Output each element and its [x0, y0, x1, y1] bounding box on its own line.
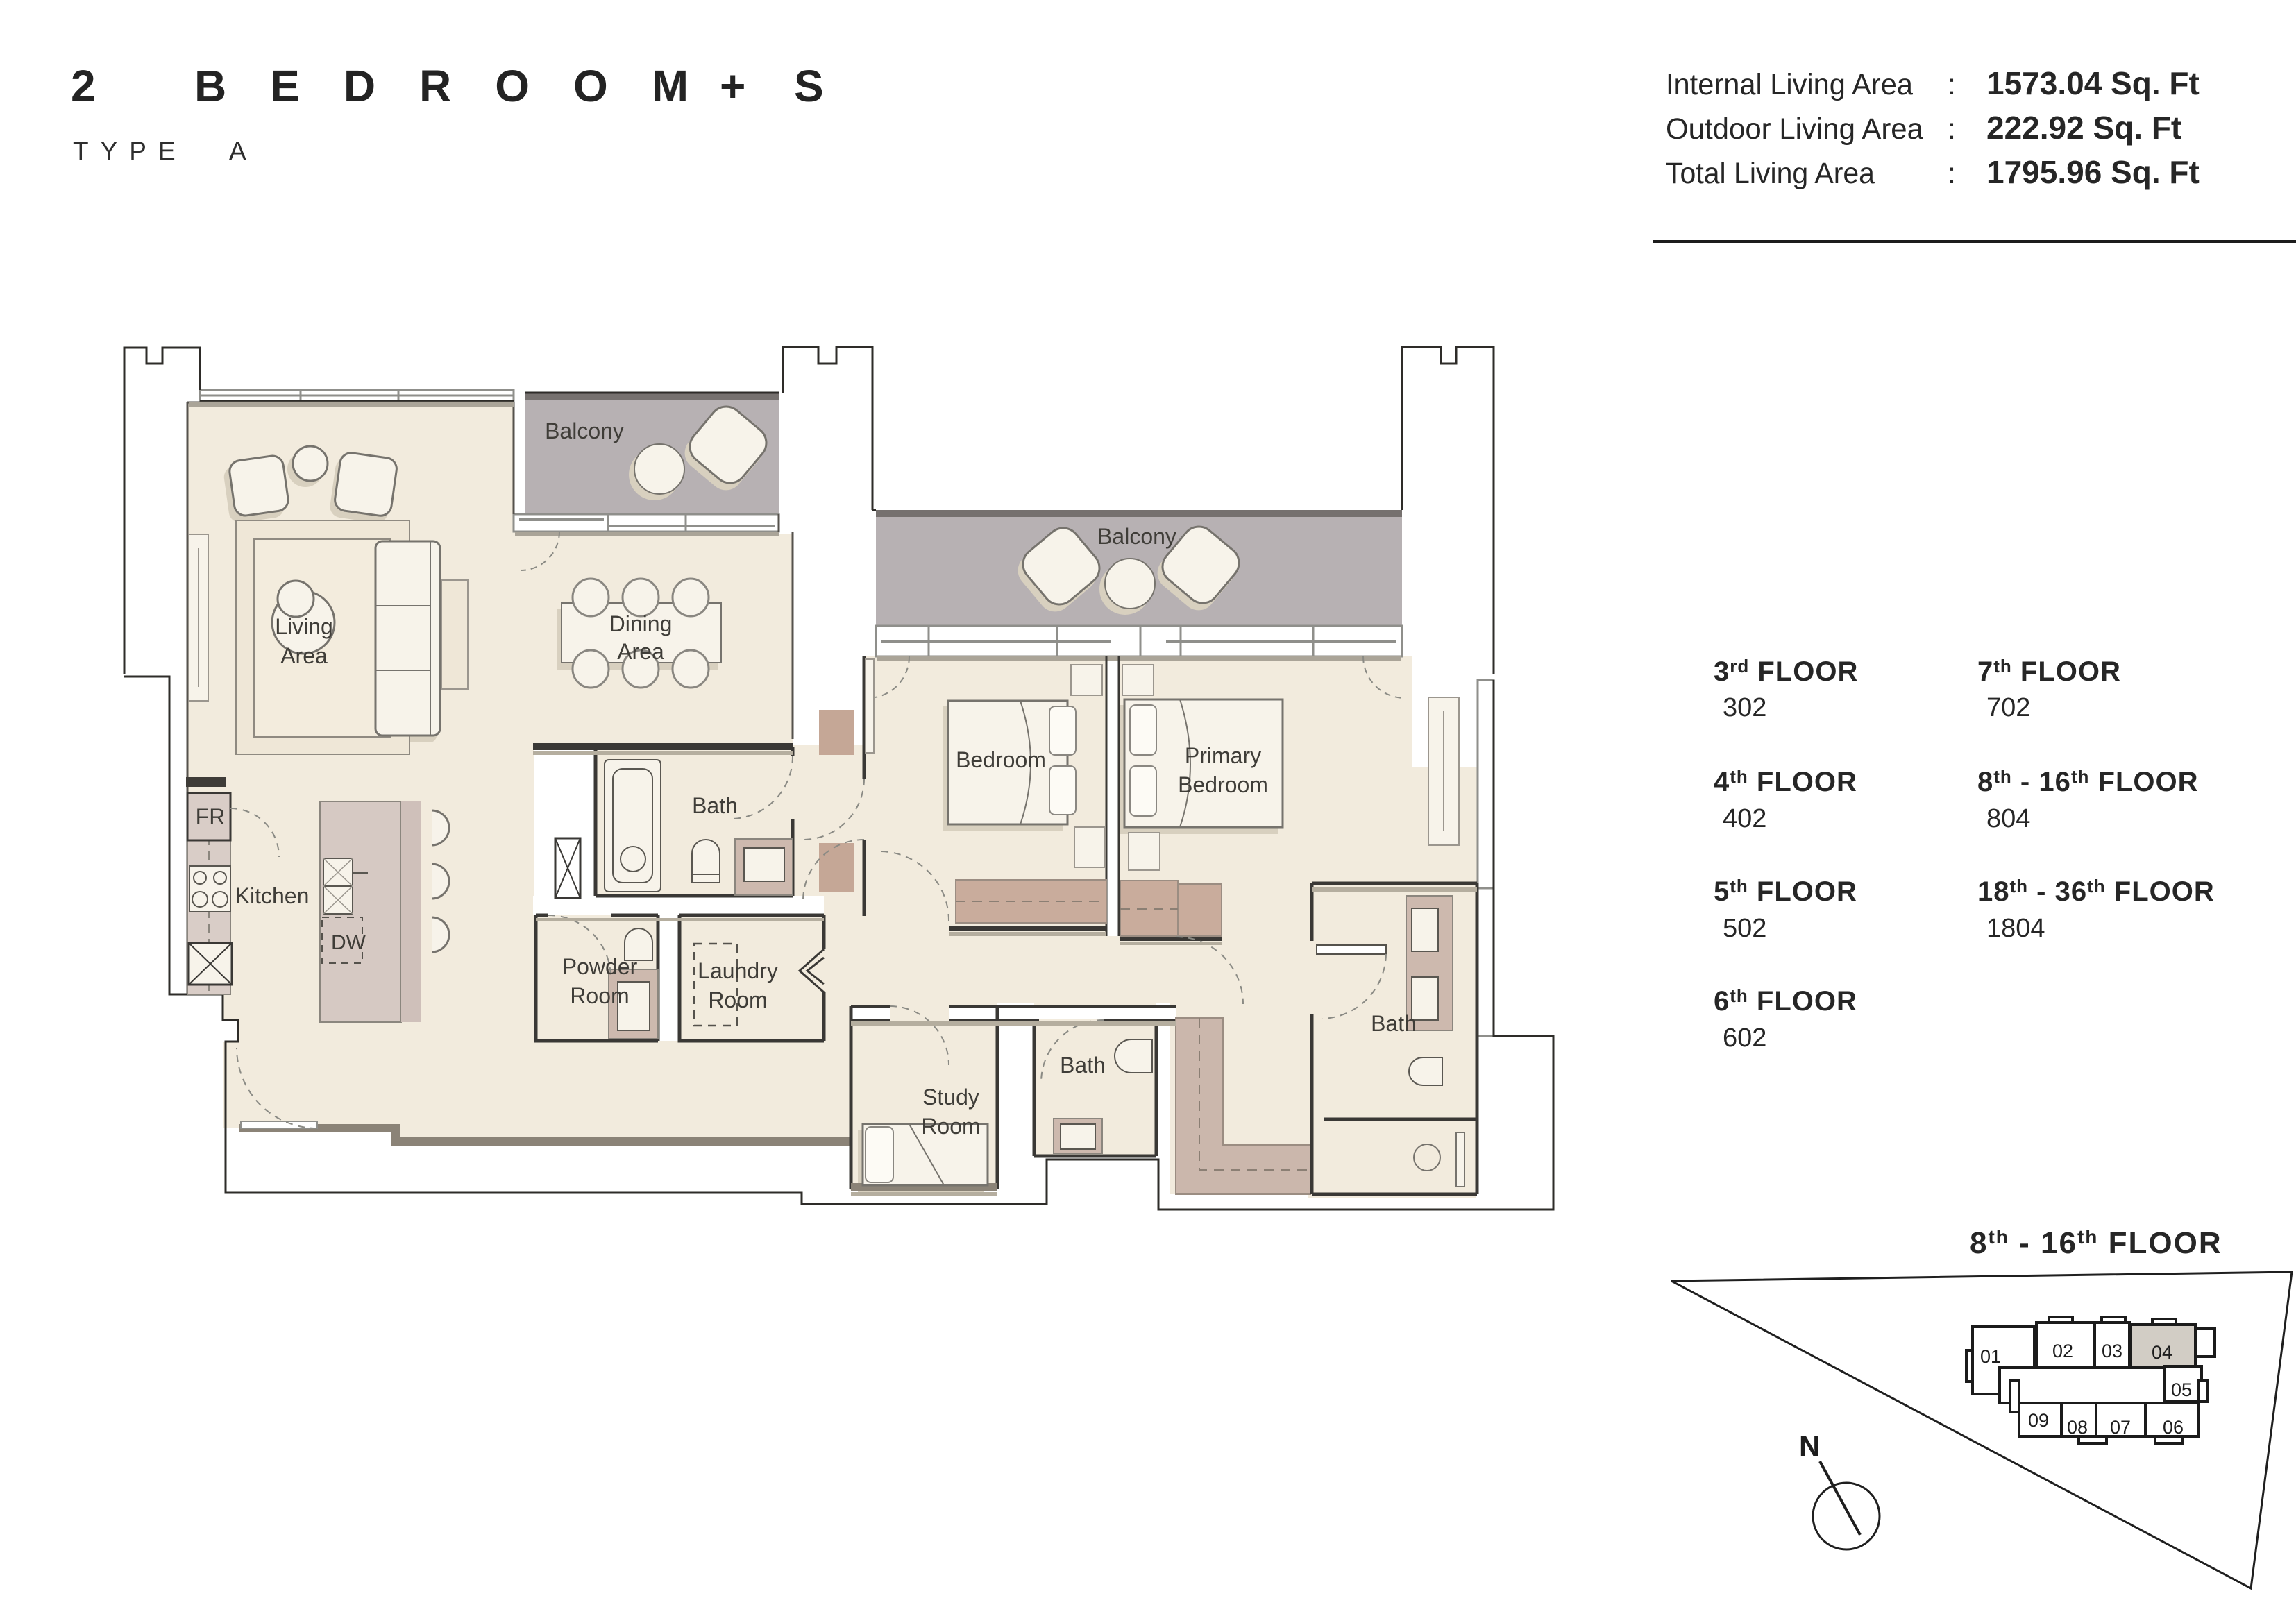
svg-text:Laundry: Laundry — [698, 958, 778, 983]
svg-text:S: S — [794, 61, 824, 111]
svg-text:302: 302 — [1723, 693, 1766, 722]
svg-text:804: 804 — [1986, 804, 2030, 833]
svg-text:Room: Room — [570, 983, 629, 1008]
svg-text::: : — [1948, 157, 1956, 190]
svg-text:702: 702 — [1986, 693, 2030, 722]
svg-text:Room: Room — [708, 987, 767, 1012]
svg-text:222.92 Sq. Ft: 222.92 Sq. Ft — [1986, 110, 2181, 146]
svg-text:02: 02 — [2052, 1341, 2073, 1361]
svg-text:Living: Living — [275, 614, 333, 639]
svg-text:502: 502 — [1723, 914, 1766, 943]
svg-text:Bath: Bath — [1371, 1011, 1417, 1036]
svg-text:04: 04 — [2152, 1342, 2172, 1363]
svg-text:Balcony: Balcony — [545, 418, 624, 443]
svg-text:2: 2 — [71, 61, 96, 111]
svg-text:402: 402 — [1723, 804, 1766, 833]
svg-text:Kitchen: Kitchen — [235, 883, 310, 908]
svg-text:Bath: Bath — [1060, 1053, 1106, 1078]
svg-text:1804: 1804 — [1986, 914, 2045, 943]
svg-text:1573.04 Sq. Ft: 1573.04 Sq. Ft — [1986, 65, 2200, 101]
svg-text:DW: DW — [331, 931, 366, 954]
svg-text:N: N — [1799, 1429, 1820, 1462]
svg-text:602: 602 — [1723, 1023, 1766, 1053]
svg-text:Room: Room — [921, 1114, 980, 1139]
svg-text:Area: Area — [280, 643, 328, 668]
svg-text:Study: Study — [922, 1085, 979, 1110]
svg-text:Balcony: Balcony — [1097, 524, 1176, 549]
svg-text:Outdoor Living Area: Outdoor Living Area — [1666, 112, 1923, 146]
svg-text:Dining: Dining — [609, 611, 673, 636]
svg-text:Powder: Powder — [562, 954, 638, 979]
svg-text:01: 01 — [1980, 1346, 2001, 1367]
svg-text:TYPEA: TYPEA — [73, 137, 258, 165]
svg-text:06: 06 — [2163, 1417, 2184, 1438]
svg-text:1795.96 Sq. Ft: 1795.96 Sq. Ft — [1986, 154, 2200, 190]
svg-text:+: + — [720, 61, 745, 111]
svg-text::: : — [1948, 68, 1956, 101]
svg-text:07: 07 — [2110, 1417, 2131, 1438]
svg-text:03: 03 — [2102, 1341, 2122, 1361]
svg-text:Area: Area — [617, 639, 664, 664]
svg-text:Bedroom: Bedroom — [956, 747, 1046, 772]
svg-text:Bath: Bath — [692, 793, 738, 818]
svg-text::: : — [1948, 112, 1956, 146]
svg-text:Total Living Area: Total Living Area — [1666, 157, 1875, 190]
svg-text:Internal Living Area: Internal Living Area — [1666, 68, 1913, 101]
svg-text:09: 09 — [2028, 1410, 2049, 1431]
svg-text:FR: FR — [196, 804, 226, 829]
svg-text:Primary: Primary — [1185, 743, 1261, 768]
svg-text:08: 08 — [2067, 1417, 2088, 1438]
svg-text:Bedroom: Bedroom — [1178, 772, 1268, 797]
svg-text:05: 05 — [2171, 1379, 2192, 1400]
